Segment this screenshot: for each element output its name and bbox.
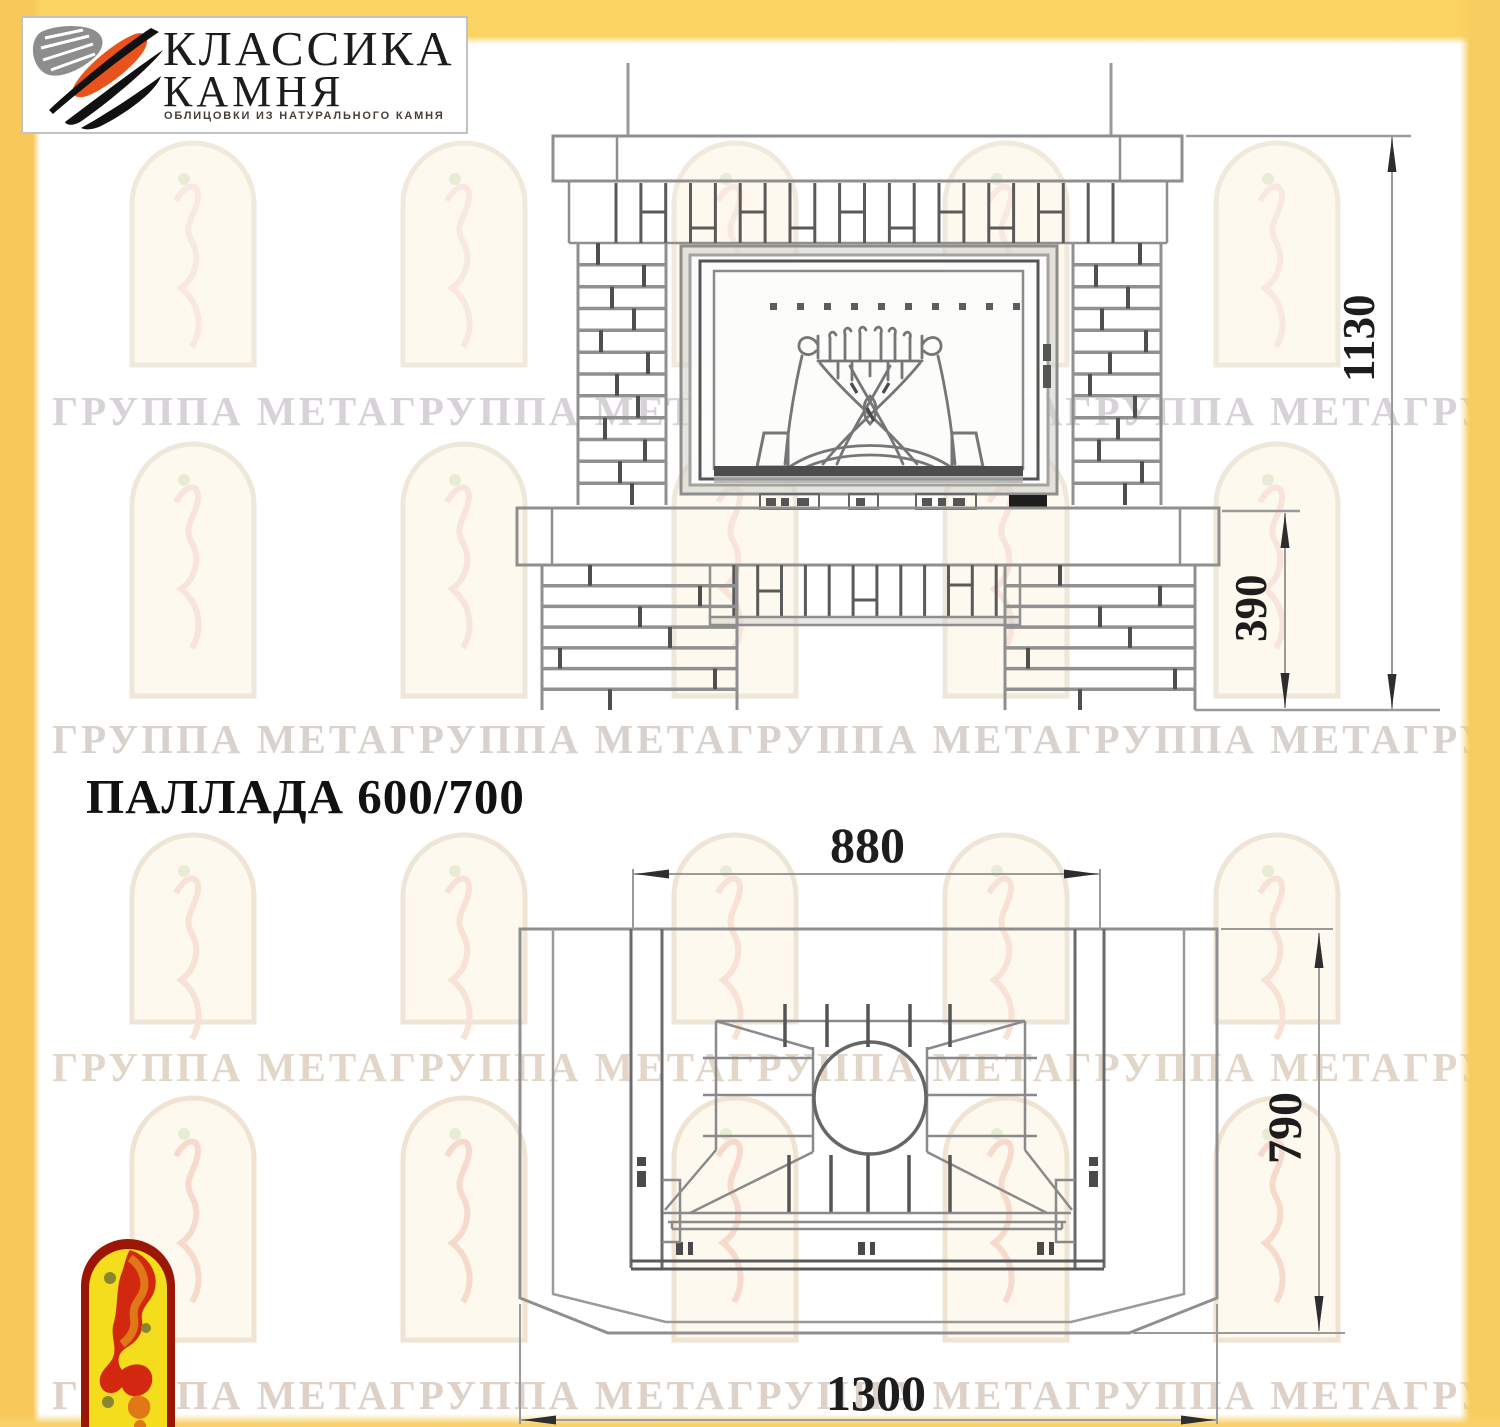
svg-text:880: 880 bbox=[830, 817, 905, 873]
svg-text:790: 790 bbox=[1259, 1092, 1312, 1164]
svg-text:1130: 1130 bbox=[1334, 294, 1384, 382]
svg-text:1300: 1300 bbox=[826, 1365, 926, 1421]
svg-text:390: 390 bbox=[1226, 575, 1276, 643]
